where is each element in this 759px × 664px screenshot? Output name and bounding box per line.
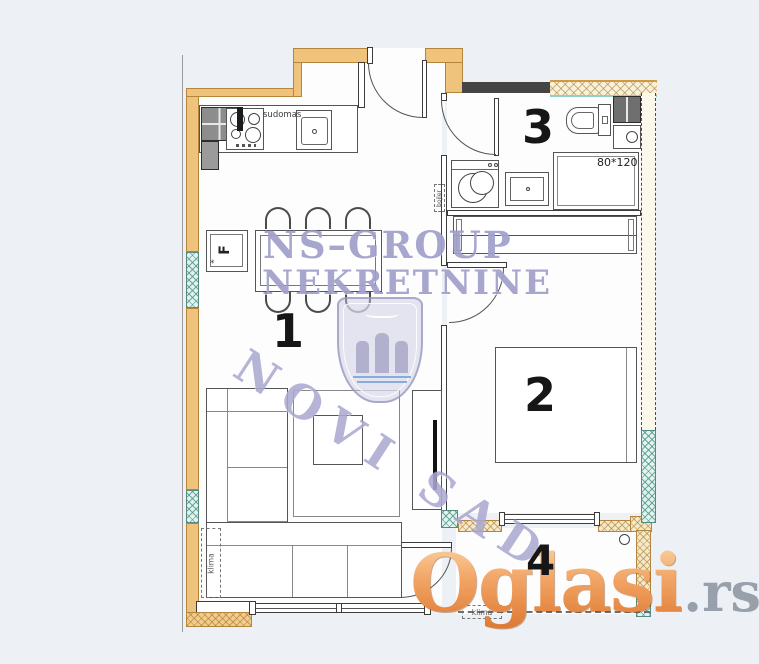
stove-burner-icon (248, 113, 260, 125)
oglasi-logo: Oglasi.rs (410, 536, 759, 630)
wall-left-upper (186, 88, 199, 252)
bathroom-sink-drain (526, 187, 530, 191)
dishwasher-label: sudomas (263, 110, 301, 120)
shield-tower-icon (356, 341, 369, 373)
ac-living-label: klima (207, 553, 216, 573)
shield-wave-icon (353, 376, 411, 378)
boiler-label: bojler (436, 190, 443, 207)
bed-edge-line (626, 348, 627, 462)
shield-tower-icon (375, 333, 389, 373)
washing-machine-knob (494, 163, 498, 167)
plot-boundary-line (182, 55, 183, 632)
bathroom-sink (505, 172, 549, 206)
oglasi-logo-tld: .rs (683, 560, 759, 624)
room-label-terrace: 4 (526, 540, 555, 582)
wall-alcove-top-right (425, 48, 463, 63)
shield-crown-icon (365, 308, 399, 318)
wall-bottom-left-hatched (186, 612, 252, 627)
kitchen-divider (237, 107, 243, 131)
kitchen-lower-cabinet (201, 141, 219, 170)
floor-plan-image: sudomas F * klima (0, 0, 759, 664)
watermark-brand-line2: NEKRETNINE (262, 266, 552, 300)
kitchen-sink (296, 110, 332, 150)
wall-alcove-right (445, 62, 463, 93)
bathroom-boiler-unit (613, 125, 641, 149)
room-label-bedroom: 2 (524, 372, 556, 418)
window-bedroom-right (641, 430, 656, 523)
boiler-box: bojler (434, 184, 445, 212)
window-jamb-center (336, 603, 342, 613)
sofa-cushion-line (347, 545, 348, 597)
toilet (566, 107, 600, 134)
boiler-dial (626, 131, 638, 143)
toilet-bowl (571, 112, 594, 129)
fridge-mark: * (210, 259, 215, 269)
window-jamb-left (249, 601, 256, 615)
wall-terrace-top-right (598, 520, 632, 532)
room-label-living: 1 (272, 308, 304, 354)
wardrobe-endcap (628, 219, 634, 251)
sofa-cushion-line (207, 545, 401, 546)
fridge: F * (206, 230, 248, 272)
washing-machine-knob (488, 163, 492, 167)
entrance-opening (372, 48, 425, 63)
sofa-horizontal (206, 522, 402, 598)
stove (226, 108, 264, 150)
washing-machine-panel (452, 169, 498, 170)
entrance-jamb-left (367, 47, 373, 64)
wall-top-kitchen (186, 88, 302, 97)
window-bedroom-south-jamb-right (594, 512, 600, 526)
shower-size-label: 80*120 (597, 156, 638, 169)
wall-alcove-top (293, 48, 372, 63)
bed (495, 347, 637, 463)
wall-bathroom-top (462, 82, 552, 93)
room-label-bathroom: 3 (522, 104, 554, 150)
window-left-upper (186, 252, 199, 308)
wall-left-middle (186, 308, 199, 490)
stove-burner-icon (245, 127, 261, 143)
wall-hall-kitchen (358, 62, 365, 108)
sofa-cushion-line (227, 467, 287, 468)
stove-knobs (236, 144, 256, 147)
toilet-tank (598, 104, 611, 136)
fridge-label: F (217, 245, 233, 255)
watermark-brand-line1: NS–GROUP (263, 227, 513, 264)
washing-machine-door (470, 171, 494, 195)
ac-unit-living: klima (201, 528, 221, 598)
wall-right (641, 93, 656, 430)
shield-wave-icon (357, 381, 407, 383)
shield-tower-icon (395, 341, 408, 373)
sofa-cushion-line (292, 545, 293, 597)
bathroom-shelf-cabinet (613, 96, 641, 123)
window-left-lower (186, 490, 199, 523)
washing-machine (451, 160, 499, 208)
toilet-flush-button (602, 116, 608, 124)
kitchen-sink-drain (312, 129, 317, 134)
